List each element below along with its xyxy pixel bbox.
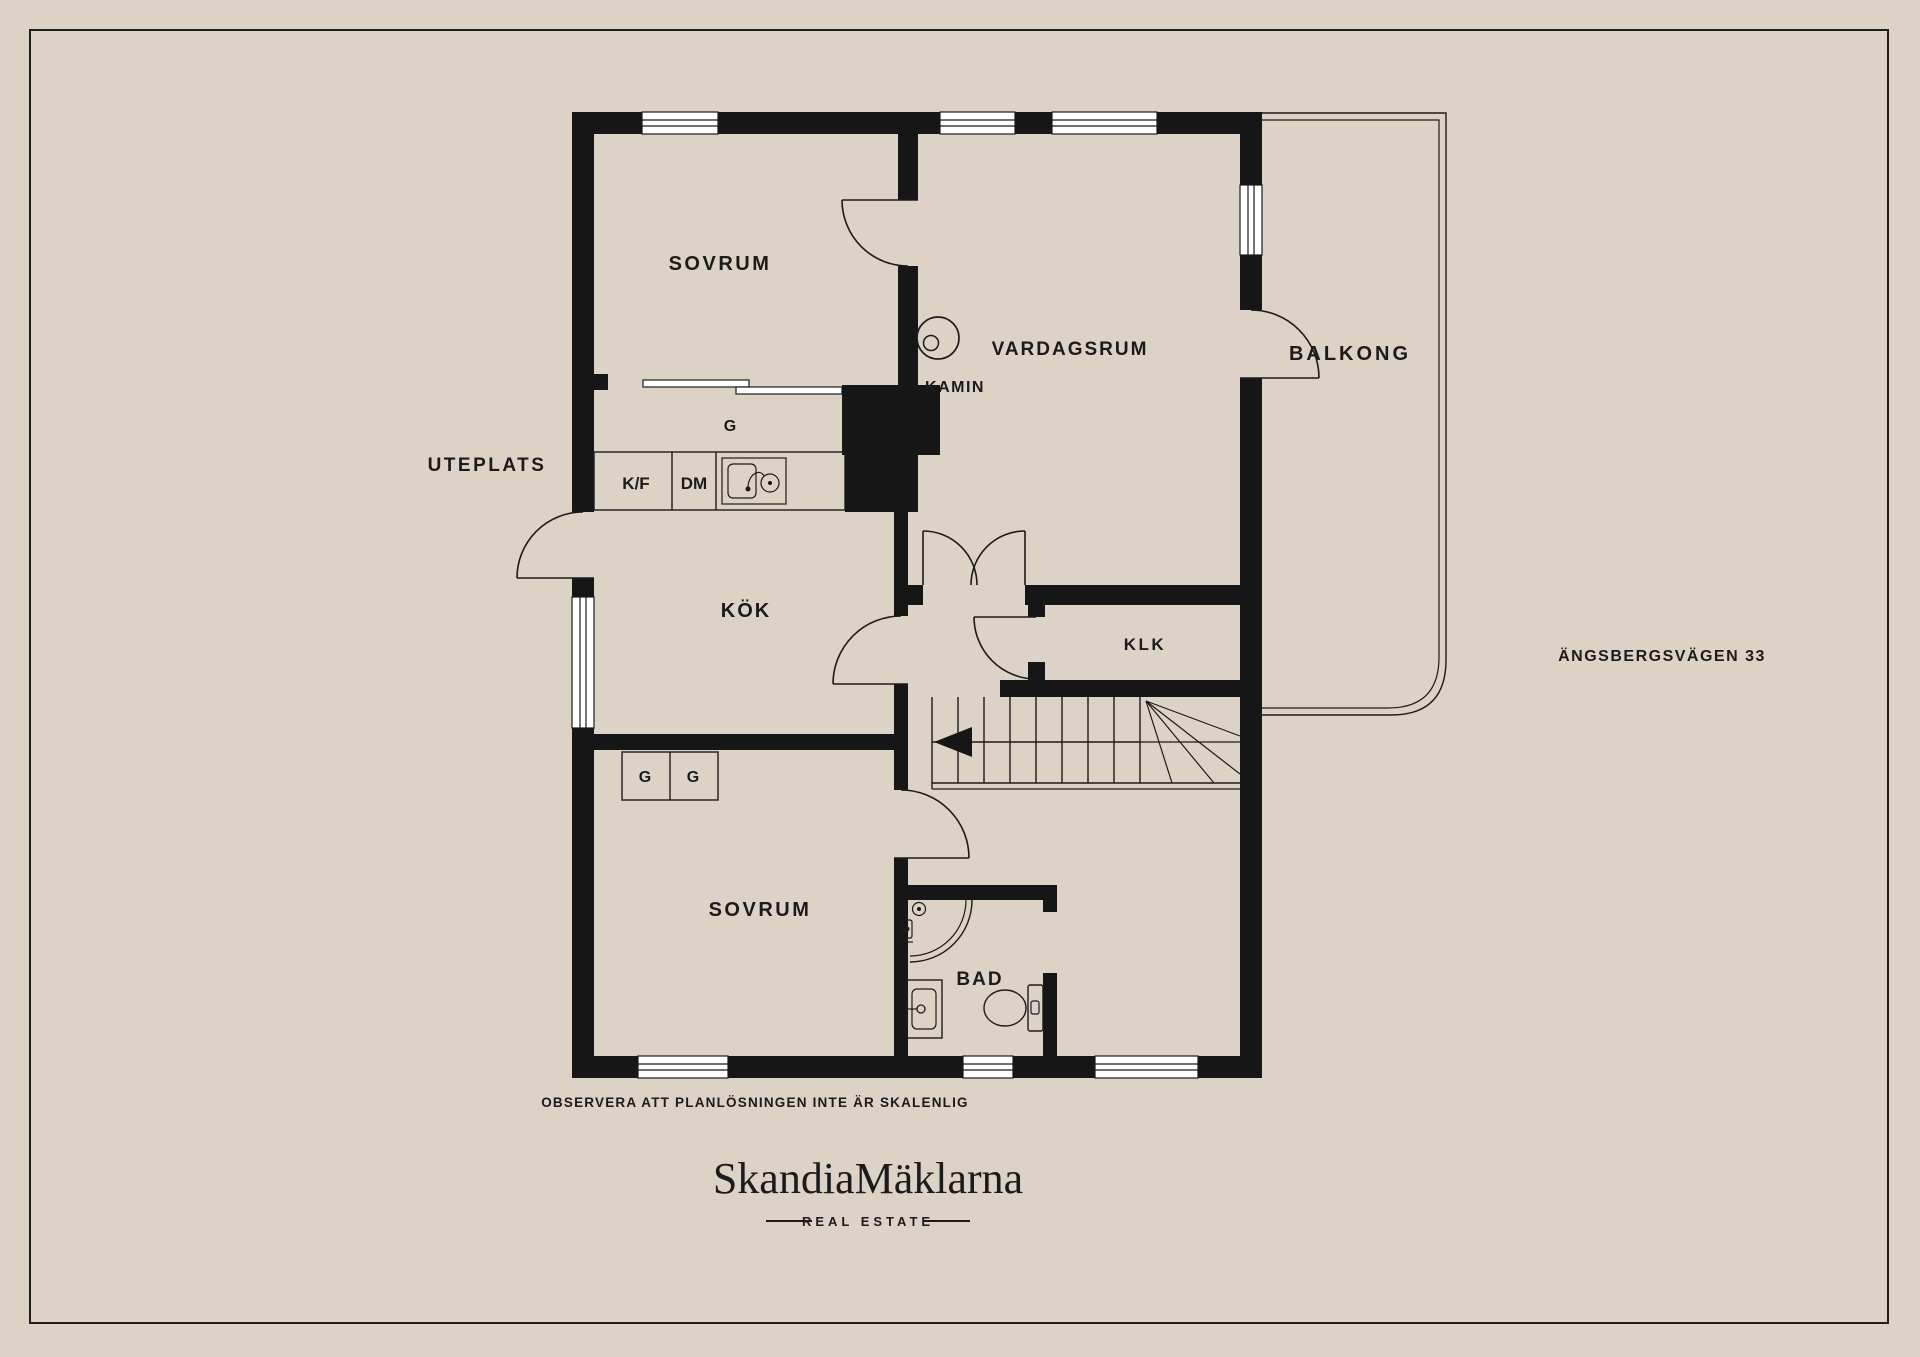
page-border (30, 30, 1888, 1323)
address-text: ÄNGSBERGSVÄGEN 33 (1558, 647, 1766, 665)
window-bottom-bedroom (638, 1056, 728, 1078)
brand-name: SkandiaMäklarna (713, 1154, 1023, 1203)
wall-bedroom-living-upper (898, 134, 918, 200)
label-fireplace: KAMIN (925, 379, 985, 396)
label-bedroom-top: SOVRUM (669, 253, 772, 275)
wall-bath-stub (1043, 900, 1057, 912)
label-wardrobe-bottom-left: G (639, 769, 651, 786)
wall-bath-north (908, 885, 1057, 900)
window-right-balcony (1240, 185, 1262, 255)
stairs-direction-arrow (934, 727, 972, 757)
kitchen-door (833, 616, 908, 684)
disclaimer-text: OBSERVERA ATT PLANLÖSNINGEN INTE ÄR SKAL… (541, 1095, 969, 1110)
label-balcony: BALKONG (1289, 343, 1411, 365)
chimney-block-lower (845, 452, 918, 512)
wall-right (1240, 112, 1262, 1078)
window-top-living-1 (940, 112, 1015, 134)
wall-left (572, 112, 594, 1078)
label-patio: UTEPLATS (428, 455, 547, 476)
label-dishwasher: DM (681, 474, 707, 493)
shower-icon (902, 900, 972, 962)
wall-wardrobe-stub (594, 374, 608, 390)
living-room-double-door (923, 531, 1025, 606)
label-wardrobe-bottom-right: G (687, 769, 699, 786)
wall-living-south-left (905, 585, 923, 605)
window-bottom-hall (1095, 1056, 1198, 1078)
floor-plan-page: SOVRUM VARDAGSRUM KAMIN BALKONG UTEPLATS… (0, 0, 1920, 1357)
label-walk-in-closet: KLK (1124, 635, 1166, 654)
wall-living-south-right (1025, 585, 1240, 605)
toilet-icon (984, 985, 1043, 1031)
wall-stairs-north (1000, 680, 1240, 697)
window-bottom-bath (963, 1056, 1013, 1078)
window-top-living-2 (1052, 112, 1157, 134)
label-kitchen: KÖK (721, 599, 771, 622)
fireplace-icon (917, 317, 959, 359)
brand-tagline: REAL ESTATE (802, 1214, 934, 1229)
wall-klk-stub-top (1028, 605, 1045, 617)
label-bedroom-bottom: SOVRUM (709, 899, 812, 921)
kitchen-sink-icon (722, 458, 786, 504)
wall-kitchen-south (594, 734, 908, 750)
window-left-kitchen (572, 597, 594, 728)
bath-sink-icon (906, 980, 942, 1038)
label-fridge-freezer: K/F (622, 474, 649, 493)
bedroom-bottom-door (894, 790, 969, 858)
balcony-outline (1262, 113, 1446, 715)
wardrobe-sliding-door (643, 380, 842, 394)
brand-logo: SkandiaMäklarna REAL ESTATE (713, 1154, 1023, 1229)
label-living-room: VARDAGSRUM (992, 339, 1149, 360)
balcony-door-gap (1239, 310, 1263, 378)
stairs (932, 697, 1240, 789)
floor-plan-drawing: SOVRUM VARDAGSRUM KAMIN BALKONG UTEPLATS… (0, 0, 1920, 1357)
wall-bedroom2-hall-upper (894, 750, 908, 790)
label-wardrobe-top: G (724, 418, 736, 435)
patio-door-gap (571, 512, 595, 578)
wall-bedroom-living-lower (898, 266, 918, 390)
bedroom-top-door (842, 200, 918, 266)
label-bathroom: BAD (956, 969, 1003, 990)
wall-klk-stub-bottom (1028, 662, 1045, 680)
wall-bath-east (1043, 973, 1057, 1056)
klk-door (974, 617, 1036, 679)
window-top-bedroom (642, 112, 718, 134)
wardrobe-boxes-bottom (622, 752, 718, 800)
